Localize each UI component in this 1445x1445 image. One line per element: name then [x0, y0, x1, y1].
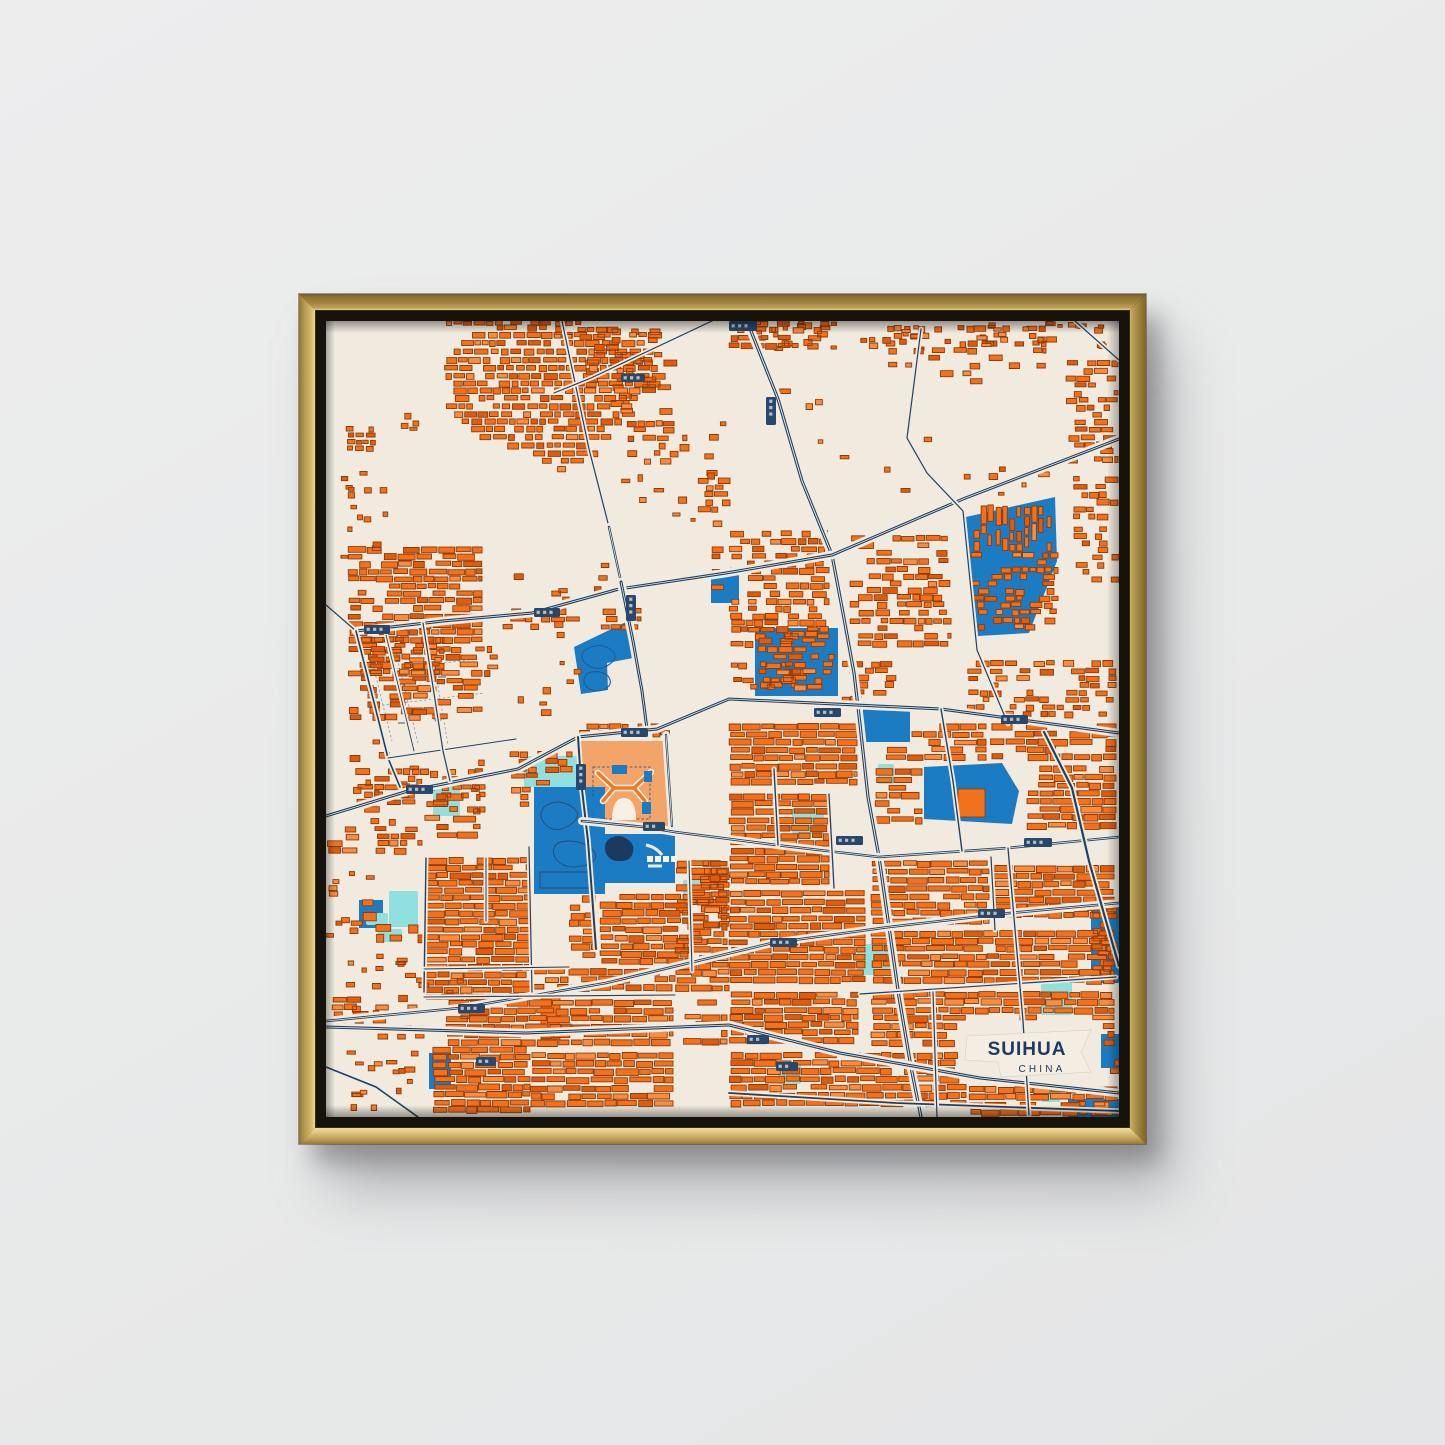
svg-text:CHINA: CHINA: [1018, 1064, 1065, 1075]
svg-text:SUIHUA: SUIHUA: [988, 1039, 1067, 1060]
